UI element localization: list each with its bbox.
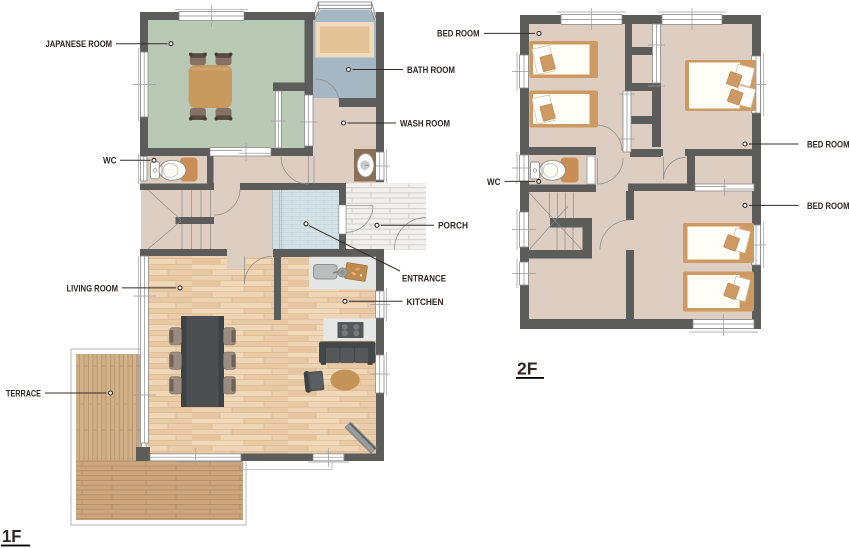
svg-text:KITCHEN: KITCHEN bbox=[407, 297, 444, 307]
svg-text:2F: 2F bbox=[517, 359, 538, 379]
svg-text:BED ROOM: BED ROOM bbox=[807, 139, 849, 149]
svg-text:JAPANESE ROOM: JAPANESE ROOM bbox=[46, 39, 113, 49]
svg-text:BED ROOM: BED ROOM bbox=[807, 201, 849, 211]
svg-text:WC: WC bbox=[487, 177, 501, 187]
svg-text:PORCH: PORCH bbox=[438, 221, 468, 231]
svg-text:1F: 1F bbox=[2, 526, 22, 546]
svg-text:BED ROOM: BED ROOM bbox=[437, 29, 480, 39]
svg-text:TERRACE: TERRACE bbox=[6, 388, 41, 398]
svg-text:LIVING ROOM: LIVING ROOM bbox=[67, 283, 119, 293]
svg-text:ENTRANCE: ENTRANCE bbox=[402, 273, 446, 283]
svg-text:WASH ROOM: WASH ROOM bbox=[400, 118, 450, 128]
svg-text:WC: WC bbox=[103, 156, 117, 166]
svg-text:BATH ROOM: BATH ROOM bbox=[407, 65, 455, 75]
